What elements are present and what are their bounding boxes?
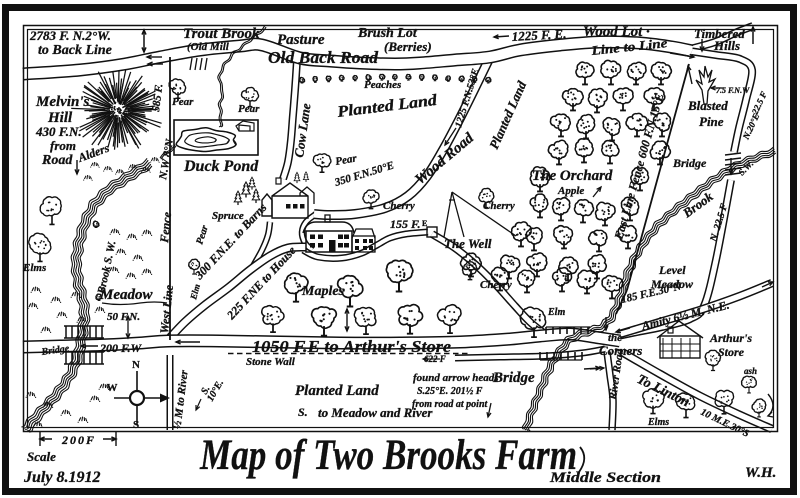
svg-text:Elms: Elms — [22, 262, 46, 274]
svg-text:Cherry: Cherry — [483, 200, 515, 212]
svg-text:to Meadow and River: to Meadow and River — [318, 405, 433, 420]
svg-text:July 8.1912: July 8.1912 — [23, 469, 100, 486]
svg-text:1225 F. E.: 1225 F. E. — [511, 26, 566, 44]
svg-text:N: N — [132, 359, 140, 371]
svg-text:Old Back Road: Old Back Road — [268, 48, 379, 67]
svg-text:The Orchard: The Orchard — [532, 168, 613, 184]
svg-text:1050 F.E to Arthur's Store: 1050 F.E to Arthur's Store — [252, 337, 451, 356]
svg-text:Road: Road — [41, 153, 73, 168]
svg-text:Cherry: Cherry — [383, 200, 415, 212]
svg-text:Scale: Scale — [27, 449, 56, 464]
svg-text:622 F: 622 F — [424, 354, 446, 364]
svg-text:430 F.N.: 430 F.N. — [35, 124, 82, 139]
svg-text:Peaches: Peaches — [364, 79, 401, 91]
svg-text:W: W — [107, 382, 118, 394]
svg-text:200F: 200F — [61, 433, 96, 447]
svg-text:Pine: Pine — [699, 114, 724, 129]
svg-text:from: from — [50, 138, 76, 153]
svg-text:Apple: Apple — [557, 185, 584, 197]
svg-text:S.: S. — [298, 405, 308, 419]
svg-text:Bridge: Bridge — [672, 156, 707, 170]
svg-text:Cherry: Cherry — [480, 279, 512, 291]
svg-text:Arthur's: Arthur's — [709, 331, 752, 345]
svg-text:S.25°E. 201½ F: S.25°E. 201½ F — [417, 386, 483, 397]
svg-text:Spruce: Spruce — [212, 210, 244, 222]
svg-text:Hills: Hills — [713, 38, 740, 53]
svg-text:The Well: The Well — [444, 236, 492, 251]
svg-text:Pear: Pear — [238, 103, 260, 115]
svg-text:(Old Mill: (Old Mill — [187, 41, 230, 53]
svg-text:Level: Level — [658, 263, 686, 277]
svg-text:E: E — [422, 219, 427, 228]
svg-text:Middle Section: Middle Section — [549, 470, 661, 486]
svg-text:2783 F. N.2°W.: 2783 F. N.2°W. — [29, 28, 111, 43]
svg-text:Stone Wall: Stone Wall — [246, 356, 296, 368]
svg-text:Store: Store — [718, 345, 745, 359]
svg-text:200 F.W: 200 F.W — [99, 341, 142, 355]
svg-text:Trout Brook: Trout Brook — [183, 26, 260, 42]
svg-text:Maples: Maples — [301, 284, 345, 299]
svg-text:Map of Two Brooks Farm: Map of Two Brooks Farm — [199, 432, 577, 479]
svg-text:Pear: Pear — [172, 96, 194, 108]
svg-text:Elms: Elms — [647, 417, 669, 428]
svg-text:to Back Line: to Back Line — [38, 43, 112, 58]
svg-text:found arrow heads: found arrow heads — [413, 372, 499, 384]
svg-text:Blasted: Blasted — [687, 98, 728, 113]
svg-text:(Berries): (Berries) — [384, 39, 432, 54]
svg-text:S: S — [133, 419, 139, 431]
svg-text:Pasture: Pasture — [277, 32, 325, 48]
svg-text:ash: ash — [744, 366, 757, 376]
svg-text:Melvin's: Melvin's — [35, 94, 89, 110]
svg-text:50 F.N.: 50 F.N. — [107, 311, 140, 323]
svg-text:Bridge: Bridge — [492, 370, 535, 386]
svg-text:Planted Land: Planted Land — [295, 383, 379, 399]
svg-text:Elm: Elm — [547, 307, 565, 318]
svg-text:155 F.: 155 F. — [390, 217, 420, 231]
svg-text:W.H.: W.H. — [745, 465, 776, 481]
svg-text:Duck Pond: Duck Pond — [183, 158, 259, 175]
svg-text:7.5 F.N.W: 7.5 F.N.W — [716, 86, 750, 95]
